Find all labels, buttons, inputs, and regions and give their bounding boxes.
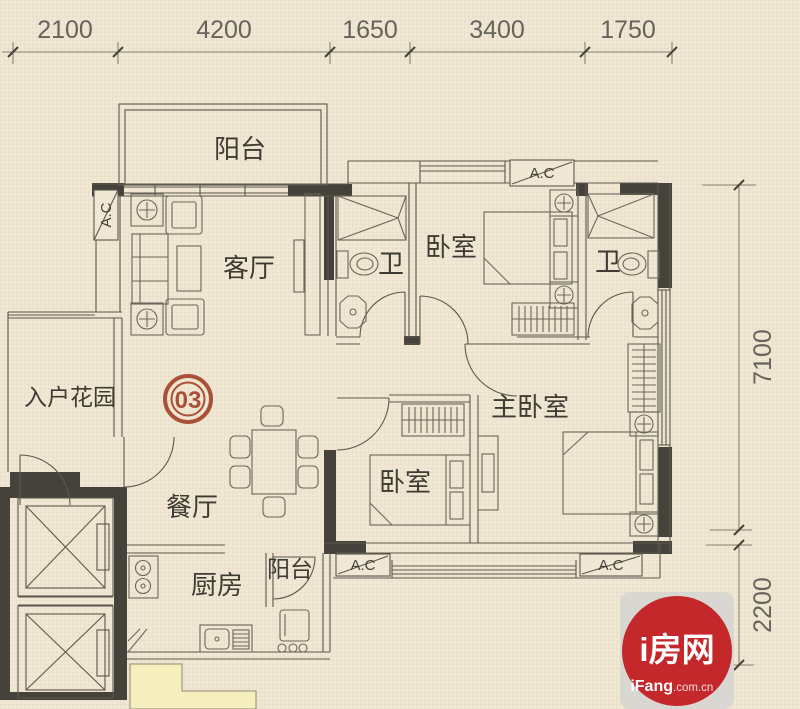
dim-right-2: 2200 [749, 577, 777, 633]
floorplan-svg: 2100 4200 1650 3400 1750 7100 2200 [0, 0, 800, 709]
label-kitchen: 厨房 [191, 570, 243, 600]
bedroom-2-furniture [370, 404, 470, 525]
label-master-bedroom: 主卧室 [491, 392, 569, 422]
label-bedroom-2: 卧室 [379, 467, 431, 497]
unit-number-text: 03 [175, 387, 202, 414]
ac-label-left: A.C [98, 202, 115, 227]
ac-unit-top-right: A.C [510, 160, 574, 186]
logo-domain-suffix: .com.cn [673, 682, 713, 694]
label-balcony-top: 阳台 [214, 134, 266, 164]
ac-unit-bottom-left: A.C [336, 554, 390, 576]
ac-label-bottom-right: A.C [598, 557, 623, 574]
logo-domain-bold: iFang [630, 678, 673, 695]
dimension-top: 2100 4200 1650 3400 1750 [2, 16, 677, 64]
ac-unit-bottom-right: A.C [580, 554, 642, 576]
unit-number-badge: 03 [165, 376, 211, 422]
ac-label-top-right: A.C [529, 165, 554, 182]
label-bedroom-1: 卧室 [425, 232, 477, 262]
dim-top-5: 1750 [600, 16, 656, 44]
label-dining-room: 餐厅 [166, 492, 218, 522]
dim-top-4: 3400 [469, 16, 525, 44]
site-logo: i房网 iFang .com.cn [620, 592, 734, 709]
dim-right-1: 7100 [749, 329, 777, 385]
ac-unit-left: A.C [94, 190, 118, 240]
dim-top-2: 4200 [196, 16, 252, 44]
dim-top-3: 1650 [342, 16, 398, 44]
adjacent-unit-area [130, 664, 256, 709]
dim-top-1: 2100 [37, 16, 93, 44]
dimension-ticks-top [8, 42, 677, 64]
floorplan-image: 2100 4200 1650 3400 1750 7100 2200 [0, 0, 800, 709]
logo-name-text: i房网 [639, 631, 714, 668]
ac-label-bottom-left: A.C [350, 557, 375, 574]
dining-furniture [230, 406, 318, 517]
label-bathroom-2: 卫 [595, 247, 621, 277]
label-living-room: 客厅 [223, 253, 275, 283]
label-entry-garden: 入户花园 [24, 384, 116, 410]
bedroom-1-furniture [484, 190, 578, 335]
master-bedroom-furniture [478, 344, 660, 536]
label-bathroom-1: 卫 [378, 249, 404, 279]
label-balcony-bottom: 阳台 [267, 556, 313, 582]
